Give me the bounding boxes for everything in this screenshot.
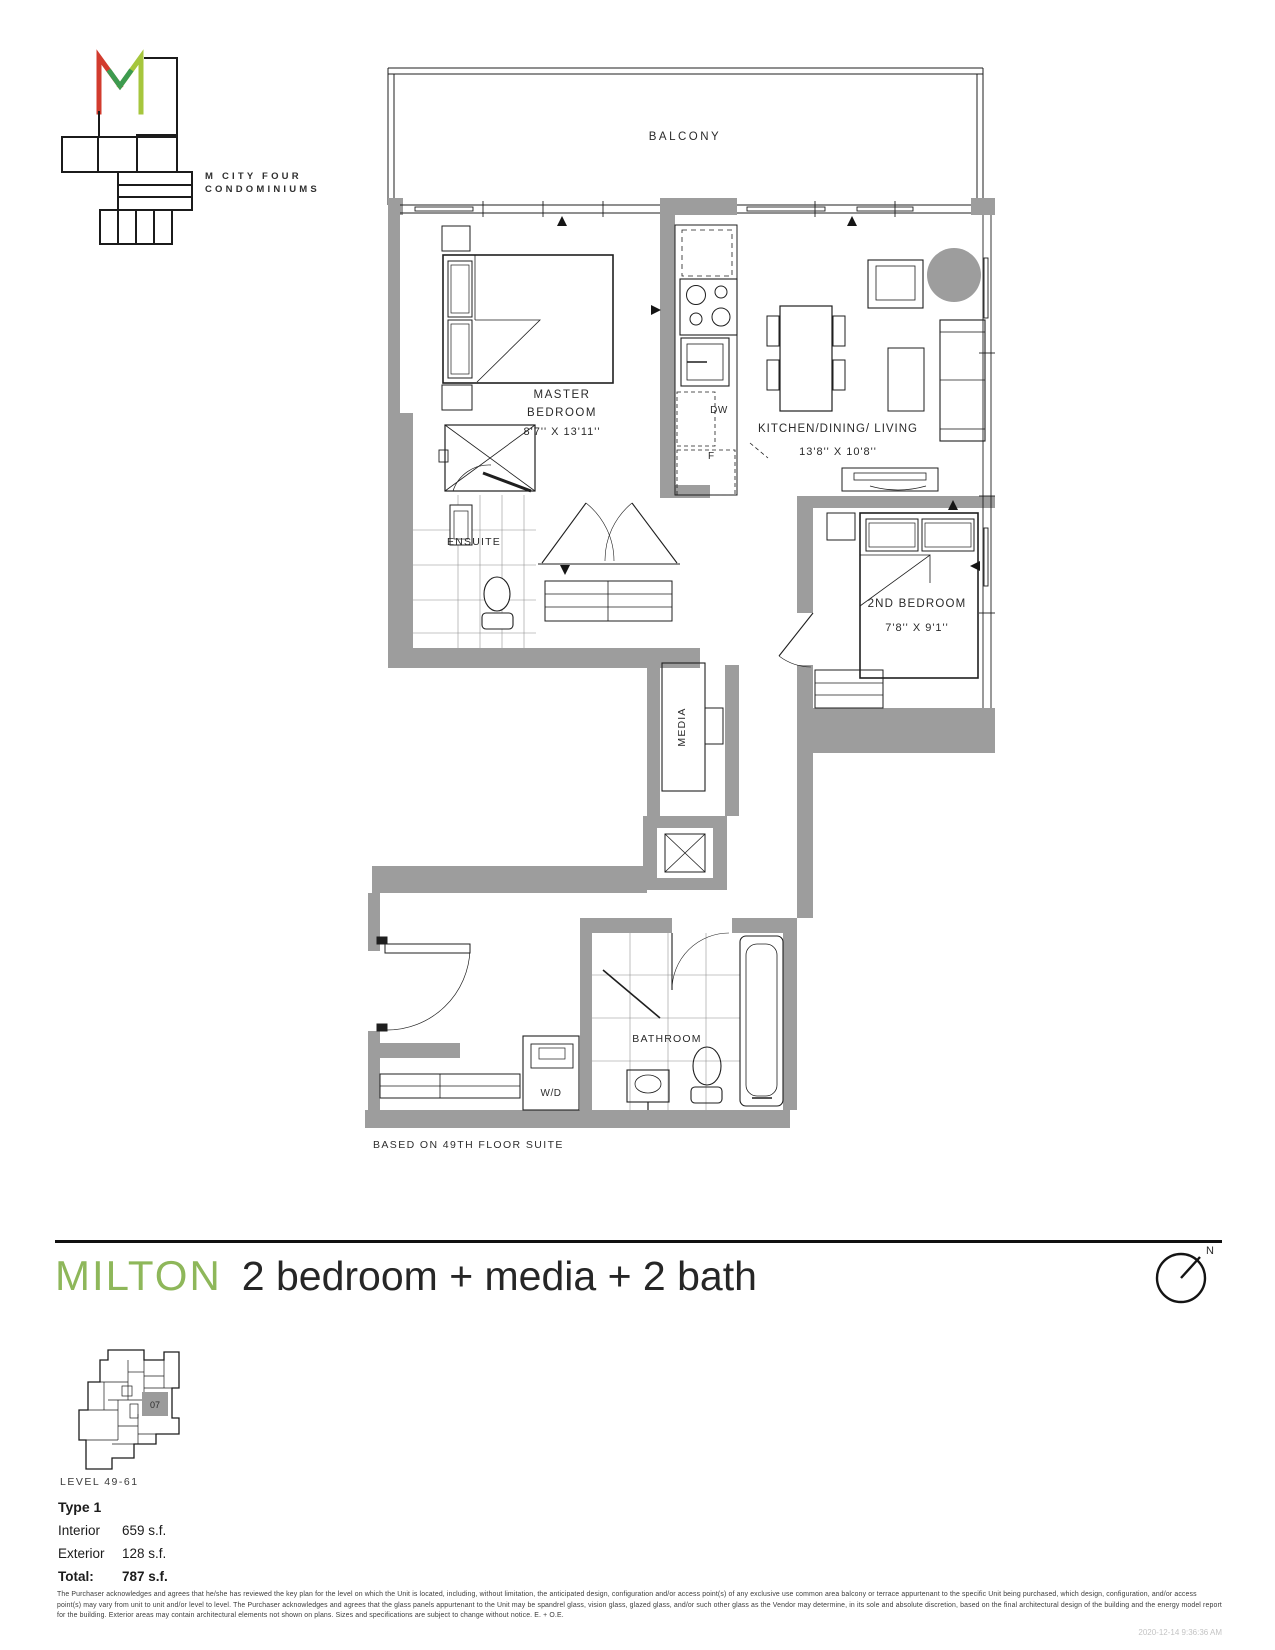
second-bedroom-furniture xyxy=(827,513,978,678)
legal-disclaimer: The Purchaser acknowledges and agrees th… xyxy=(57,1590,1222,1622)
dishwasher xyxy=(677,392,715,446)
nightstand xyxy=(827,513,855,540)
keyplan-level-label: LEVEL 49-61 xyxy=(60,1476,139,1488)
area-total-label: Total: xyxy=(58,1565,122,1588)
shower-rod xyxy=(603,970,660,1018)
nightstand xyxy=(442,385,472,410)
coffee-table xyxy=(888,348,924,411)
kdl-label: KITCHEN/DINING/ LIVING xyxy=(758,423,918,435)
washer-dryer-label: W/D xyxy=(541,1088,562,1099)
window-wall-right xyxy=(979,215,995,708)
second-bedroom-dims: 7'8'' X 9'1'' xyxy=(885,622,949,634)
logo-m-green-stroke xyxy=(110,72,130,86)
entry-door xyxy=(377,937,470,1031)
fridge-label: F xyxy=(708,451,714,462)
shower-head xyxy=(439,450,448,462)
sofa xyxy=(940,320,985,441)
media-chair xyxy=(705,708,723,744)
master-bed xyxy=(443,255,613,383)
bathroom-door-arc xyxy=(672,933,729,990)
dining-table xyxy=(780,306,832,411)
compass-needle xyxy=(1181,1257,1200,1278)
ensuite-fixtures xyxy=(450,505,513,629)
bathtub xyxy=(740,936,783,1106)
media-label: MEDIA xyxy=(676,707,688,746)
upper-cabinets xyxy=(682,230,732,276)
compass: N xyxy=(1148,1242,1222,1308)
brand-line1: M CITY FOUR xyxy=(205,170,320,183)
column xyxy=(927,248,981,302)
shower-door xyxy=(483,473,531,491)
area-type: Type 1 xyxy=(58,1496,168,1519)
shaft xyxy=(657,828,713,878)
floorplan-page: { "branding": { "name_line1": "M CITY FO… xyxy=(0,0,1275,1650)
second-bedroom-label-group: 2ND BEDROOM 7'8'' X 9'1'' xyxy=(868,598,967,634)
second-bedroom-label: 2ND BEDROOM xyxy=(868,598,967,610)
stove xyxy=(680,279,737,335)
dishwasher-label: DW xyxy=(710,405,728,416)
area-interior-value: 659 s.f. xyxy=(122,1519,166,1542)
keyplan: 07 xyxy=(78,1348,196,1472)
plan-note: BASED ON 49TH FLOOR SUITE xyxy=(373,1139,564,1151)
swing-arrows xyxy=(557,216,980,575)
area-exterior-label: Exterior xyxy=(58,1542,122,1565)
hall-closet xyxy=(545,581,672,621)
hall-doors xyxy=(538,503,680,564)
kitchen xyxy=(675,225,737,495)
area-exterior-value: 128 s.f. xyxy=(122,1542,166,1565)
master-bedroom-furniture xyxy=(442,226,613,410)
balcony-label: BALCONY xyxy=(649,131,721,143)
title-divider xyxy=(55,1240,1222,1243)
brand-name: M CITY FOUR CONDOMINIUMS xyxy=(205,170,320,196)
master-label-2: BEDROOM xyxy=(527,407,597,419)
dining-set xyxy=(767,306,845,411)
mcity-logo xyxy=(60,48,205,246)
ensuite-tiles xyxy=(413,495,536,648)
second-bedroom-door xyxy=(779,613,813,667)
area-total-value: 787 s.f. xyxy=(122,1565,168,1588)
title-row: MILTON 2 bedroom + media + 2 bath xyxy=(55,1252,757,1300)
second-bed xyxy=(860,513,978,678)
bathroom-toilet xyxy=(693,1047,721,1085)
media-desk xyxy=(662,663,723,791)
nightstand xyxy=(442,226,470,251)
unit-name: MILTON xyxy=(55,1252,222,1300)
tv-console xyxy=(842,468,938,491)
ensuite-label: ENSUITE xyxy=(447,536,501,548)
floorplan-drawing: BALCONY xyxy=(355,58,1005,1163)
area-interior-label: Interior xyxy=(58,1519,122,1542)
second-bedroom-closet xyxy=(815,670,883,708)
unit-description: 2 bedroom + media + 2 bath xyxy=(242,1253,757,1300)
master-label-1: MASTER xyxy=(534,389,591,401)
keyplan-unit-label: 07 xyxy=(150,1400,160,1410)
print-timestamp: 2020-12-14 9:36:36 AM xyxy=(1040,1628,1222,1637)
kdl-label-group: KITCHEN/DINING/ LIVING 13'8'' X 10'8'' xyxy=(758,423,918,458)
ensuite-shower xyxy=(439,425,535,491)
area-interior: Interior 659 s.f. xyxy=(58,1519,168,1542)
bathroom-tiles xyxy=(592,933,740,1110)
bathroom-label: BATHROOM xyxy=(632,1033,702,1045)
ensuite-toilet xyxy=(484,577,510,611)
entry-dash xyxy=(750,443,768,458)
brand-line2: CONDOMINIUMS xyxy=(205,183,320,196)
compass-north-label: N xyxy=(1206,1245,1214,1257)
bed-fold xyxy=(475,320,540,382)
kdl-dims: 13'8'' X 10'8'' xyxy=(799,446,877,458)
area-total: Total: 787 s.f. xyxy=(58,1565,168,1588)
area-table: Type 1 Interior 659 s.f. Exterior 128 s.… xyxy=(58,1496,168,1588)
area-exterior: Exterior 128 s.f. xyxy=(58,1542,168,1565)
